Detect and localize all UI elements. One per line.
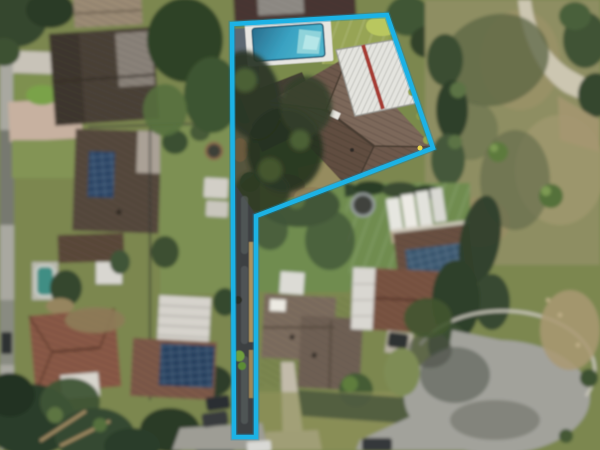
tree-shadow-on-road — [450, 400, 540, 440]
tree — [305, 210, 355, 270]
parked-car — [247, 440, 272, 450]
dirt-patch — [46, 298, 74, 314]
tree — [404, 298, 452, 338]
parked-car — [387, 332, 409, 350]
bush — [580, 369, 598, 387]
neighbor-house-upper-left — [49, 27, 159, 126]
neighbor-house-top-left-partial — [73, 0, 143, 28]
parked-car — [362, 438, 392, 450]
neighbor-house-left-solar — [72, 129, 162, 234]
bush — [559, 2, 591, 30]
park-tree — [488, 142, 508, 162]
garden-shed — [206, 200, 229, 217]
grass-verge — [384, 348, 420, 396]
tree — [110, 250, 130, 274]
tree — [151, 236, 179, 268]
dirt-patch — [540, 290, 600, 370]
dirt-patch — [65, 307, 125, 333]
parked-car — [1, 332, 12, 354]
road-tree-shadow — [0, 130, 14, 225]
boundary-marker-dot — [418, 146, 423, 151]
trampoline — [206, 143, 222, 159]
bush — [559, 429, 573, 443]
garden-shed — [279, 271, 304, 295]
garden-shed — [203, 177, 228, 198]
aerial-photo-canvas — [0, 0, 600, 450]
front-lawn — [12, 140, 82, 178]
aerial-photo — [0, 0, 600, 450]
round-spa — [352, 194, 374, 216]
skylight — [269, 299, 286, 312]
